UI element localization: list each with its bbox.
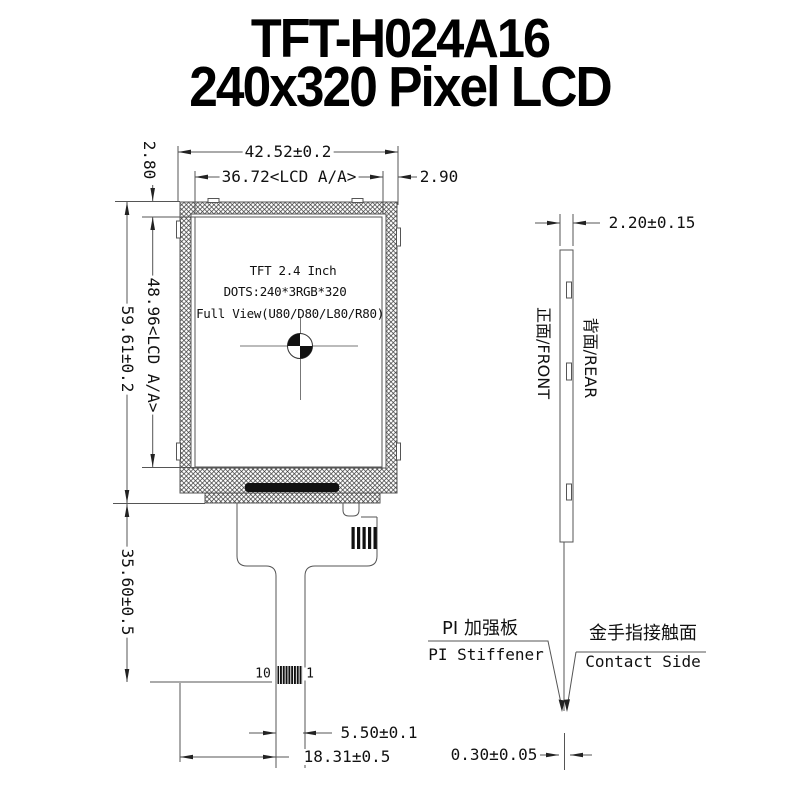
label-rear-side: 背面/REAR bbox=[582, 318, 598, 399]
dim-active-width: 36.72<LCD A/A> bbox=[220, 169, 359, 185]
component-stripes bbox=[352, 527, 377, 549]
page-title-resolution: 240x320 Pixel LCD bbox=[189, 59, 610, 115]
pin-label-10: 10 bbox=[253, 668, 273, 681]
dim-top-margin: 2.80 bbox=[141, 139, 157, 182]
dim-outline-width: 42.52±0.2 bbox=[243, 144, 334, 160]
fpc-connector-pins bbox=[278, 666, 303, 684]
callout-contact-en: Contact Side bbox=[585, 654, 701, 670]
callout-stiffener-cn: PI 加强板 bbox=[442, 620, 518, 638]
display-spec-dots: DOTS:240*3RGB*320 bbox=[224, 286, 347, 299]
dim-fpc-length: 35.60±0.5 bbox=[119, 547, 135, 638]
bonding-bar bbox=[245, 483, 339, 492]
callout-contact-cn: 金手指接触面 bbox=[589, 625, 697, 643]
dim-outline-height: 59.61±0.2 bbox=[119, 304, 135, 395]
lcd-datasheet-drawing: TFT-H024A16 240x320 Pixel LCD TFT 2.4 In… bbox=[0, 0, 800, 800]
callout-stiffener-en: PI Stiffener bbox=[428, 647, 544, 663]
dim-tail-offset: 18.31±0.5 bbox=[302, 749, 393, 765]
dim-contact-thickness: 0.30±0.05 bbox=[449, 747, 540, 763]
dim-active-height: 48.96<LCD A/A> bbox=[145, 276, 161, 415]
dim-thickness: 2.20±0.15 bbox=[607, 215, 698, 231]
display-spec-size: TFT 2.4 Inch bbox=[250, 265, 337, 278]
display-spec-view: Full View(U80/D80/L80/R80) bbox=[196, 308, 384, 321]
pin-label-1: 1 bbox=[304, 668, 316, 681]
drawing-canvas bbox=[0, 0, 800, 800]
dim-tail-width: 5.50±0.1 bbox=[338, 725, 419, 741]
label-front-side: 正面/FRONT bbox=[535, 307, 551, 399]
dim-right-margin: 2.90 bbox=[418, 169, 461, 185]
side-view-drawing bbox=[428, 214, 706, 770]
